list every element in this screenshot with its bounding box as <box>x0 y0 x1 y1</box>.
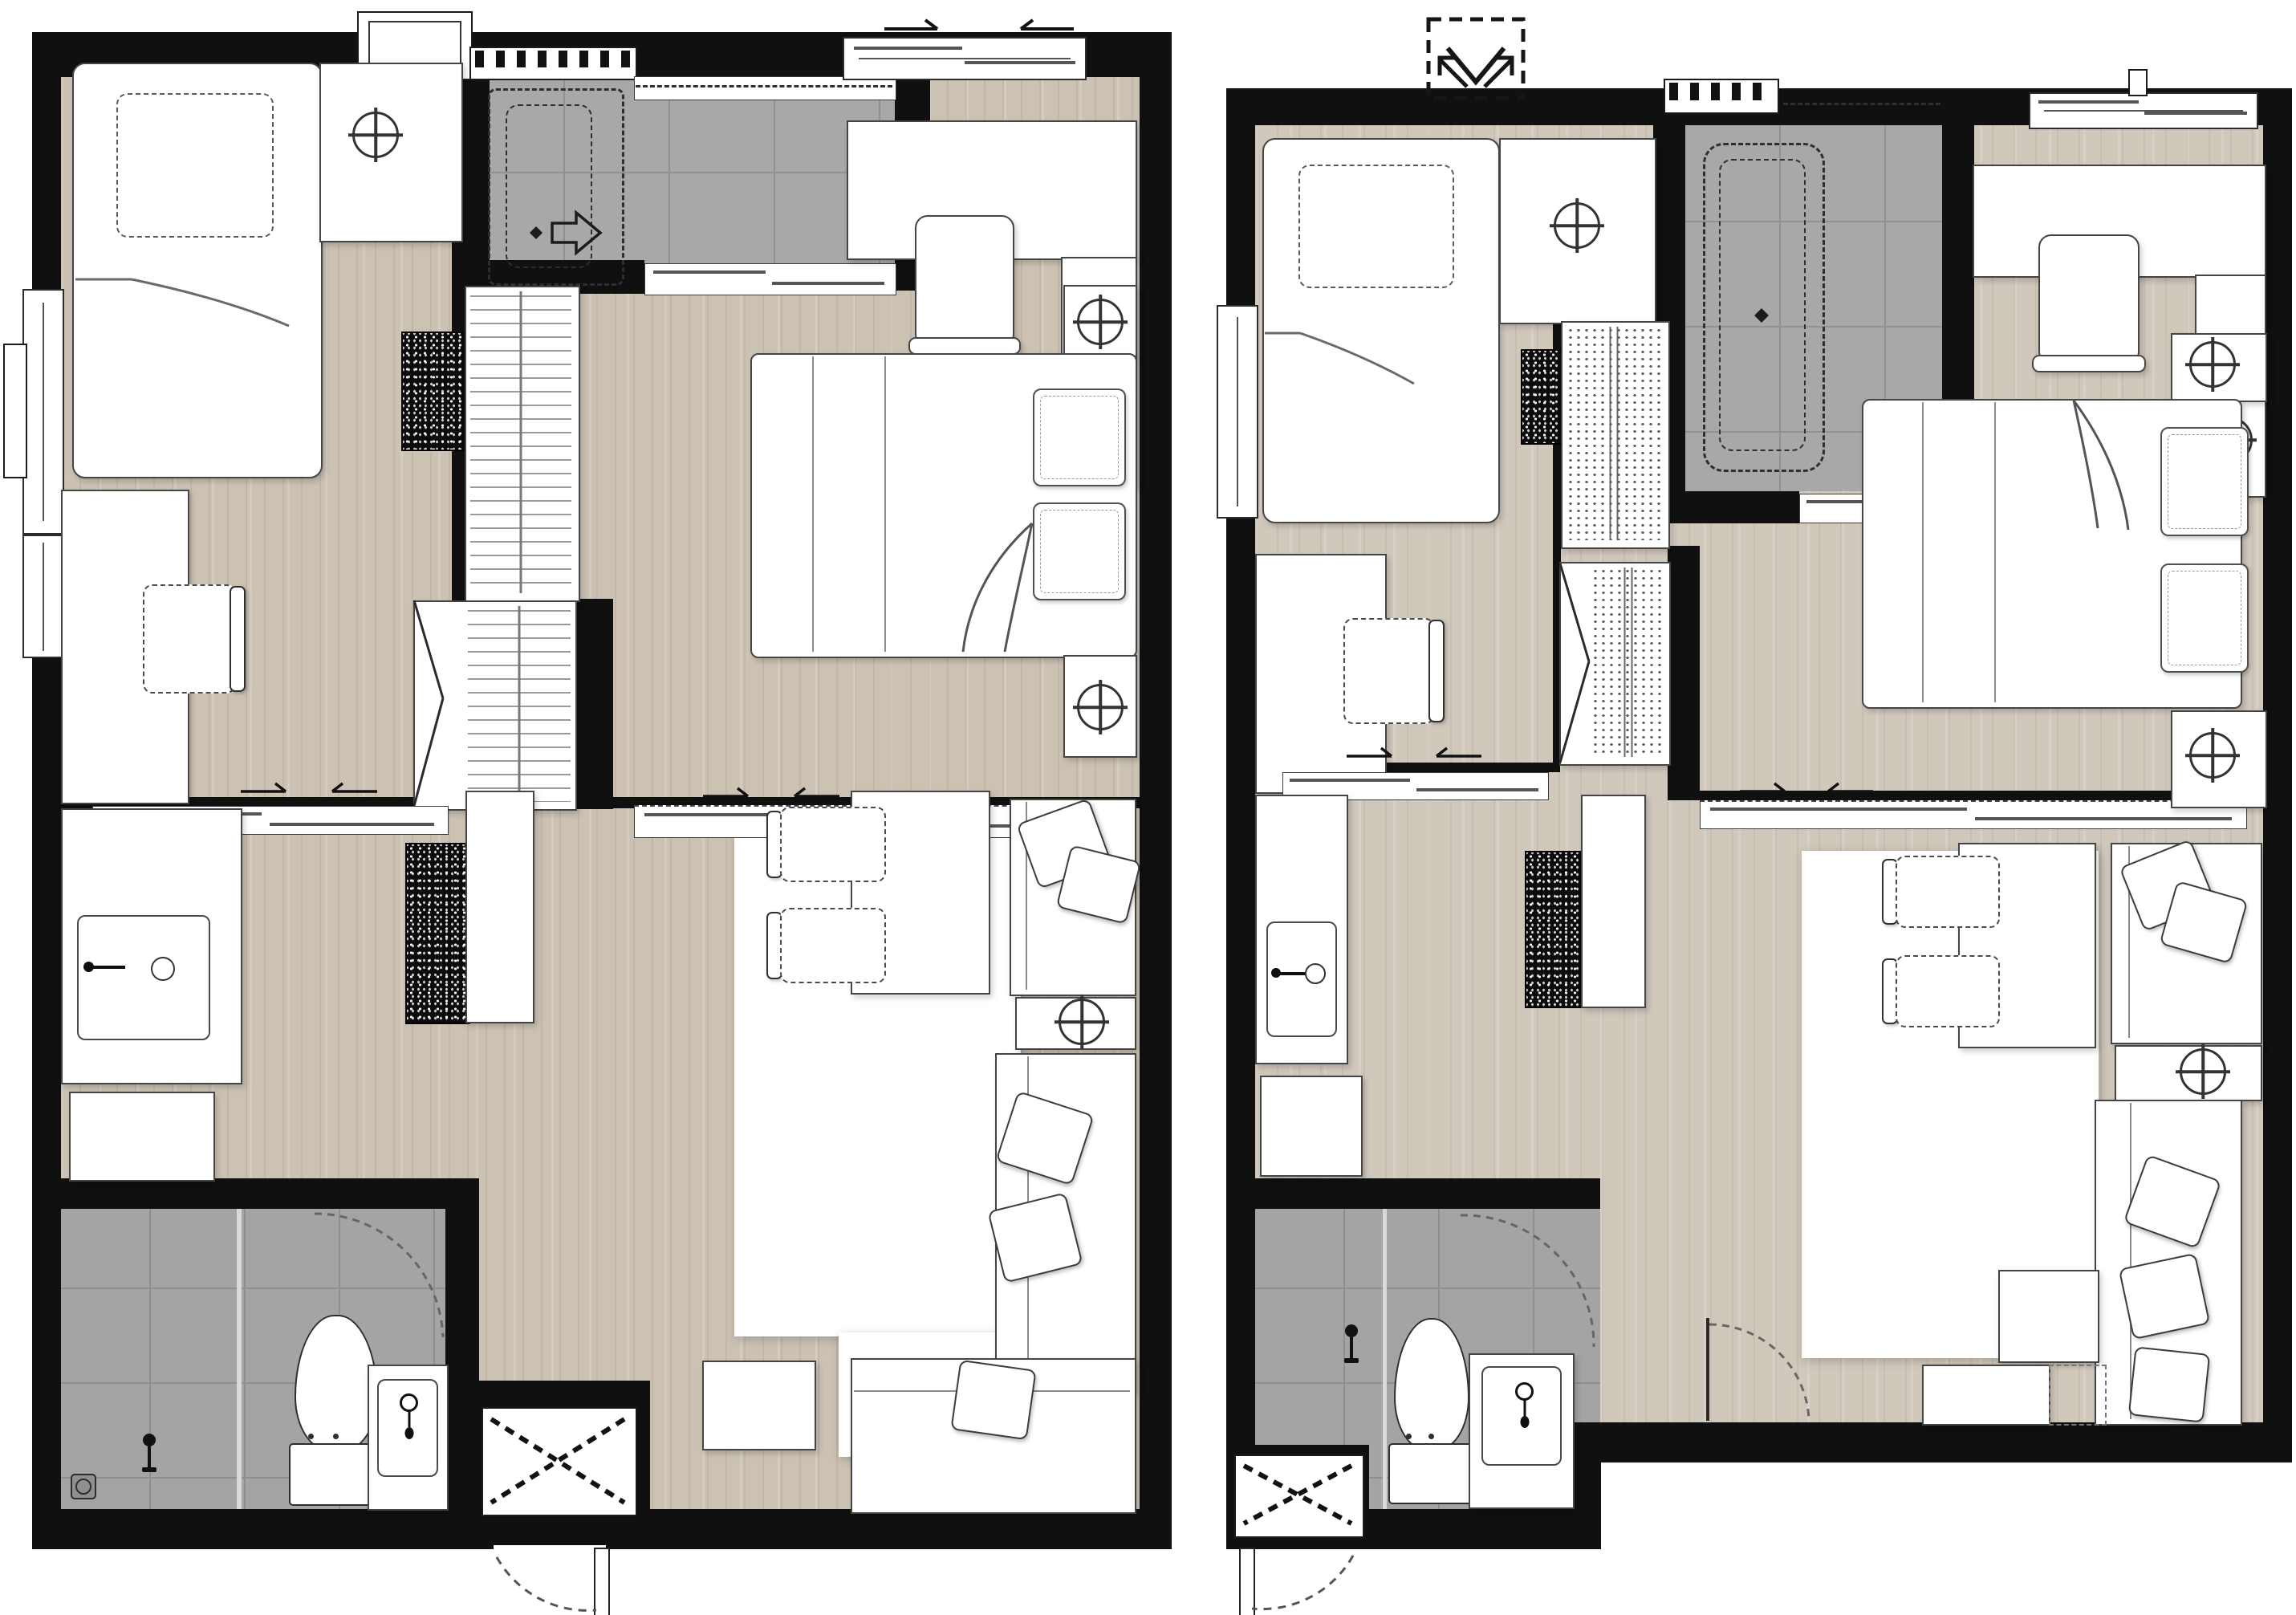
bifold-closet <box>413 600 577 811</box>
floor-plan-right <box>1226 0 2296 1615</box>
wall-bottom-left <box>32 1509 494 1549</box>
tall-dark-unit <box>405 843 470 1024</box>
door-panel-line <box>653 271 766 274</box>
table-lamp-icon <box>2189 341 2236 388</box>
mattress-line <box>812 356 814 652</box>
shower-glass-partition <box>237 1209 242 1509</box>
side-window <box>1217 305 1258 519</box>
basin-tap-icon <box>1515 1382 1534 1401</box>
bathtub-inner <box>1719 159 1806 451</box>
single-bed-pillow <box>116 93 274 238</box>
door-panel-line <box>270 823 434 826</box>
exterior-ledge <box>3 344 27 478</box>
kitchen-sink <box>77 915 210 1040</box>
mirror-panel <box>401 332 465 451</box>
kitchen-sink <box>1266 921 1337 1037</box>
toilet-button <box>333 1434 339 1439</box>
toilet-bowl <box>1394 1318 1470 1451</box>
side-window-upper <box>22 289 64 535</box>
high-window-dashed-line <box>636 85 892 87</box>
folded-clothes-closet <box>1561 321 1670 549</box>
entry-door-leaf <box>1239 1548 1255 1615</box>
basin-tap-icon <box>400 1393 418 1412</box>
wall-bottom-main <box>1571 1422 2292 1462</box>
toilet-bowl <box>295 1315 377 1452</box>
wall-stub-wardrobe <box>1668 546 1700 795</box>
entry-door-swing-arc <box>497 1557 596 1610</box>
service-shaft-box <box>1234 1454 1364 1538</box>
window-pane-line <box>965 61 1075 64</box>
desk-chair-seat <box>1343 618 1435 724</box>
high-window-dashed-line <box>1783 103 1940 105</box>
folded-clothes-pattern <box>1591 567 1665 757</box>
wall-bathroom-top <box>1255 1178 1600 1209</box>
expand-arrow-chevron <box>1448 48 1504 82</box>
table-lamp-icon <box>2189 732 2236 779</box>
toilet-button <box>1428 1434 1434 1439</box>
window-slide-arrows-icon <box>884 20 1074 29</box>
vanity <box>1469 1353 1575 1509</box>
table-lamp-icon <box>352 112 399 158</box>
under-counter-appliance <box>1260 1076 1363 1177</box>
wall-right <box>1140 32 1172 1549</box>
window-pane-line <box>854 47 962 50</box>
service-shaft-box <box>482 1407 637 1516</box>
drain-ring-icon <box>1305 963 1326 984</box>
pillow <box>1033 502 1126 600</box>
sofa-seat-line <box>2130 1103 2131 1419</box>
door-panel-line <box>1806 500 1869 503</box>
pillow <box>1033 388 1126 486</box>
hall-cabinet <box>1581 795 1646 1008</box>
mattress-line <box>1922 402 1924 702</box>
sofa-cushion <box>950 1360 1036 1441</box>
door-panel-line <box>1416 788 1538 791</box>
expand-arrow-right <box>1485 58 1512 87</box>
sofa-chaise <box>1998 1270 2099 1363</box>
floor-plan-image <box>0 0 2296 1615</box>
door-panel-line <box>1975 817 2232 820</box>
dining-chair-seat <box>780 807 886 882</box>
window-stub <box>2128 69 2148 96</box>
shower-sliding-door <box>644 263 896 295</box>
wall-left <box>32 32 61 1549</box>
master-sliding-window <box>843 37 1087 80</box>
side-window-lower <box>22 535 64 658</box>
wall-bathtub-room-bottom <box>1653 491 1799 523</box>
ac-unit-inner <box>368 21 461 69</box>
door-panel-line <box>772 282 884 285</box>
toilet <box>1387 1318 1473 1504</box>
master-chair <box>2038 234 2140 364</box>
folded-clothes-pattern <box>1567 327 1661 540</box>
entry-door-swing-arc <box>1252 1556 1353 1609</box>
door-panel-line <box>1290 779 1410 782</box>
pillow <box>2160 563 2249 673</box>
master-chair <box>915 215 1014 347</box>
desk-chair-back <box>1428 620 1445 722</box>
master-chair-rail <box>2032 355 2146 372</box>
wall-right <box>2263 88 2292 1462</box>
table-lamp-icon <box>1077 299 1124 345</box>
hanger-closet <box>465 286 580 602</box>
window-pane-line <box>2038 100 2139 104</box>
nightstand <box>319 63 463 242</box>
top-window-band <box>2029 92 2258 129</box>
hanger-pattern <box>468 606 571 802</box>
mattress-line <box>1994 402 1996 702</box>
kitchen-cabinet <box>465 791 534 1023</box>
toilet-button <box>1406 1434 1412 1439</box>
toilet-tank <box>1388 1443 1475 1504</box>
louver-vent <box>1664 79 1779 114</box>
expand-arrow-box <box>1428 19 1523 98</box>
floor-drain <box>71 1474 96 1499</box>
hanger-pattern <box>470 291 571 593</box>
sofa-cushion <box>2128 1346 2210 1422</box>
table-lamp-icon <box>1077 684 1124 730</box>
wall-bathroom-top <box>61 1178 477 1209</box>
master-sliding-doors <box>1700 800 2247 829</box>
window-pane-line <box>2144 112 2247 115</box>
bifold-closet <box>1559 562 1671 766</box>
vanity <box>368 1365 449 1511</box>
desk-chair-seat <box>143 584 236 694</box>
shower-mixer-icon <box>143 1434 156 1446</box>
single-bed-pillow <box>1298 165 1454 288</box>
door-panel-line <box>1710 807 1967 811</box>
toilet-button <box>308 1434 314 1439</box>
expand-arrow-left <box>1440 58 1467 87</box>
dining-chair-seat <box>780 908 886 983</box>
faucet-stem <box>1279 972 1306 975</box>
table-lamp-icon <box>2180 1048 2226 1095</box>
shower-enclosure-inner <box>506 104 592 268</box>
wall-bottom-right <box>606 1509 1172 1549</box>
entry-door-leaf <box>594 1548 610 1615</box>
dining-chair-seat <box>1896 856 2000 928</box>
table-lamp-icon <box>1059 999 1105 1045</box>
desk-chair-back <box>230 586 246 692</box>
under-counter-appliance <box>69 1092 215 1182</box>
shower-mixer-icon <box>1345 1324 1358 1337</box>
ottoman <box>702 1361 816 1450</box>
tall-dark-unit <box>1525 851 1584 1008</box>
table-lamp-icon <box>1554 202 1600 249</box>
faucet-stem <box>93 966 125 969</box>
pillow <box>2160 427 2249 536</box>
wall-stub-wardrobe <box>571 599 613 809</box>
louver-vent <box>469 47 637 80</box>
floor-plan-left <box>32 0 1176 1615</box>
dining-chair-seat <box>1896 955 2000 1027</box>
drain-ring-icon <box>151 957 175 981</box>
mattress-line <box>884 356 886 652</box>
master-chair-rail <box>908 337 1021 355</box>
tv-console <box>1922 1365 2050 1426</box>
console-dashed-extension <box>2049 1365 2107 1426</box>
